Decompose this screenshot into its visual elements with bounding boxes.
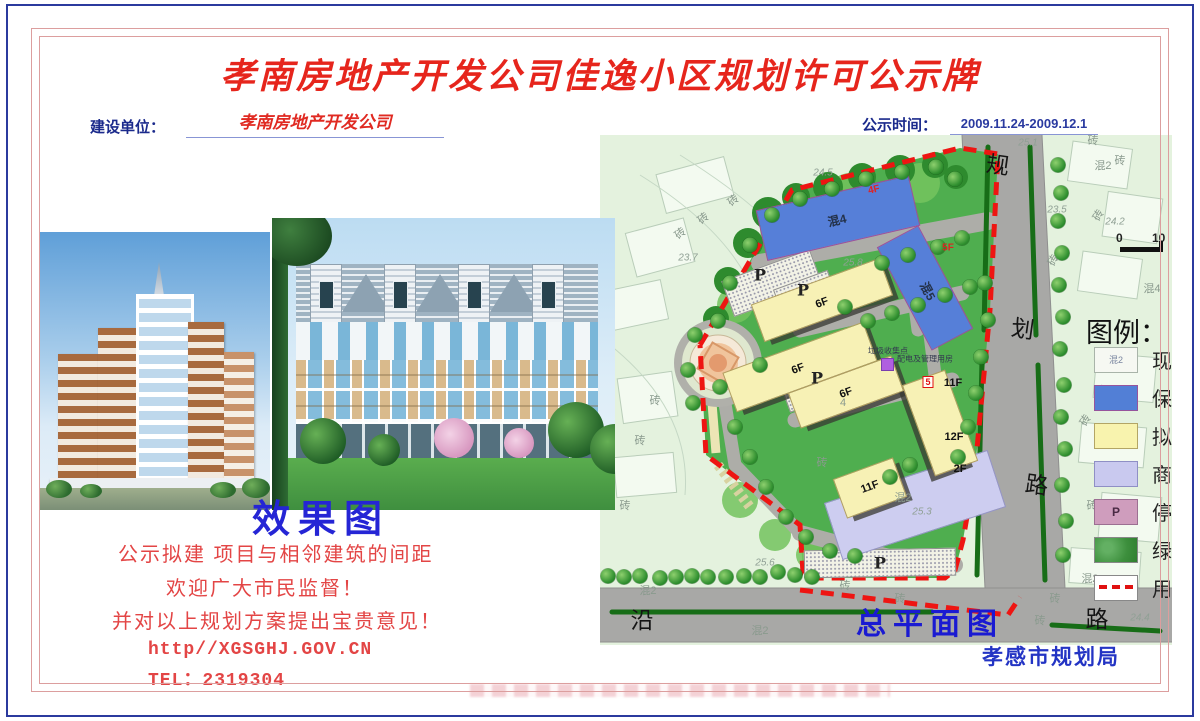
tree-icon xyxy=(713,380,728,395)
map-label: 砖 xyxy=(620,497,631,513)
tree-icon xyxy=(929,160,944,175)
tree-icon xyxy=(1054,410,1069,425)
tree-icon xyxy=(688,328,703,343)
map-label: 24.2 xyxy=(1105,217,1124,228)
tree-icon xyxy=(1053,342,1068,357)
map-label: P xyxy=(797,281,809,300)
tree-icon xyxy=(300,418,346,464)
tree-icon xyxy=(948,172,963,187)
tree-icon xyxy=(743,238,758,253)
legend-item: 混2现 xyxy=(1094,347,1172,372)
tree-icon xyxy=(711,314,726,329)
site-plan-layer: 规划路沿路混4混54F5F6F6F6F11F12F2F11F45PPPP垃圾收集… xyxy=(600,135,1172,645)
legend-label: 用 xyxy=(1152,573,1172,602)
tree-icon xyxy=(1057,378,1072,393)
tree-icon xyxy=(737,569,752,584)
tree-icon xyxy=(895,165,910,180)
map-label: 砖 xyxy=(635,432,646,448)
tree-icon xyxy=(601,569,616,584)
tower-spire xyxy=(154,262,164,296)
utility-building xyxy=(881,358,894,371)
map-label: 25.1 xyxy=(1018,138,1037,149)
tree-icon xyxy=(753,570,768,585)
notice-time-label: 公示时间： xyxy=(862,114,937,135)
tree-icon xyxy=(838,300,853,315)
tree-icon xyxy=(875,256,890,271)
legend-swatch-existing: 混2 xyxy=(1094,347,1138,373)
legend-swatch-blue xyxy=(1094,385,1138,411)
map-label: 砖 xyxy=(1088,135,1099,148)
tree-icon xyxy=(848,549,863,564)
dormer-window xyxy=(541,281,556,309)
tower-wing xyxy=(58,354,98,480)
tree-icon xyxy=(685,569,700,584)
map-label: 2F xyxy=(954,463,967,475)
tree-icon xyxy=(1058,442,1073,457)
tree-icon xyxy=(963,280,978,295)
dormer-window xyxy=(319,281,334,309)
tree-icon xyxy=(793,192,808,207)
tower-core xyxy=(136,294,194,480)
map-label: P xyxy=(874,554,886,573)
tree-icon xyxy=(799,530,814,545)
bush xyxy=(80,484,102,498)
tree-icon xyxy=(686,396,701,411)
foliage-blob xyxy=(272,218,332,266)
legend-items: 混2现保拟商P停绿用 xyxy=(1094,347,1172,613)
tree-icon xyxy=(1054,186,1069,201)
legend-item: 绿 xyxy=(1094,537,1172,562)
notice-board: 孝南房地产开发公司佳逸小区规划许可公示牌 建设单位： 孝南房地产开发公司 公示时… xyxy=(0,0,1200,721)
blossom-tree-icon xyxy=(434,418,474,458)
map-label: 砖 xyxy=(1035,612,1046,628)
map-label: 规 xyxy=(984,145,1012,182)
map-label: 4 xyxy=(840,397,846,409)
legend-item: 保 xyxy=(1094,385,1172,410)
tree-icon xyxy=(759,480,774,495)
rendering-photo-midrise xyxy=(272,218,615,510)
tree-icon xyxy=(805,570,820,585)
tree-icon xyxy=(669,570,684,585)
tree-icon xyxy=(743,450,758,465)
tree-icon xyxy=(719,570,734,585)
map-label: 24.4 xyxy=(1130,613,1149,624)
legend-swatch-lavender xyxy=(1094,461,1138,487)
scale-zero-label: 0 xyxy=(1116,231,1123,245)
site-plan: 规划路沿路混4混54F5F6F6F6F11F12F2F11F45PPPP垃圾收集… xyxy=(600,135,1172,645)
tower-wing xyxy=(188,322,224,480)
legend-swatch-green xyxy=(1094,537,1138,563)
tree-icon xyxy=(981,313,996,328)
builder-value: 孝南房地产开发公司 xyxy=(186,108,444,138)
upper-floors xyxy=(296,322,598,363)
notice-line: 公示拟建 项目与相邻建筑的间距 xyxy=(118,538,434,567)
tree-icon xyxy=(974,350,989,365)
tree-icon xyxy=(955,231,970,246)
map-label: 24.5 xyxy=(813,168,832,179)
legend-swatch-redline xyxy=(1094,575,1138,601)
watermark xyxy=(470,684,890,697)
page-title: 孝南房地产开发公司佳逸小区规划许可公示牌 xyxy=(0,48,1200,99)
tree-icon xyxy=(723,276,738,291)
map-label: 划 xyxy=(1009,309,1037,346)
legend-item: 商 xyxy=(1094,461,1172,486)
scale-bar-tick xyxy=(1159,241,1163,252)
tree-icon xyxy=(788,568,803,583)
scale-bar xyxy=(1120,247,1162,252)
tree-icon xyxy=(1052,278,1067,293)
legend-item: 拟 xyxy=(1094,423,1172,448)
map-label: 混2 xyxy=(894,489,911,505)
tree-icon xyxy=(901,248,916,263)
map-label: 混2 xyxy=(639,582,656,598)
tree-icon xyxy=(1056,548,1071,563)
map-label: P xyxy=(754,266,766,285)
map-label: 12F xyxy=(945,431,964,443)
tree-icon xyxy=(728,420,743,435)
legend-label: 商 xyxy=(1152,459,1172,488)
tree-icon xyxy=(368,434,400,466)
blossom-tree-icon xyxy=(504,428,534,458)
legend-item: P停 xyxy=(1094,499,1172,524)
map-label: 25.3 xyxy=(912,507,931,518)
tree-icon xyxy=(969,386,984,401)
legend-swatch-parking: P xyxy=(1094,499,1138,525)
tree-icon xyxy=(1059,514,1074,529)
legend-item: 用 xyxy=(1094,575,1172,600)
map-label: 砖 xyxy=(694,208,713,227)
map-label: 砖 xyxy=(671,223,690,242)
legend-label: 绿 xyxy=(1152,535,1172,564)
map-label: 23.5 xyxy=(1047,205,1066,216)
notice-line: 并对以上规划方案提出宝贵意见！ xyxy=(112,605,442,634)
builder-label: 建设单位： xyxy=(90,116,165,137)
map-label: 砖 xyxy=(1050,590,1061,606)
map-label: P xyxy=(811,369,823,388)
planning-bureau-signature: 孝感市规划局 xyxy=(982,641,1120,671)
map-label: 11F xyxy=(944,377,962,389)
legend-label: 停 xyxy=(1152,497,1172,526)
map-label: 混2 xyxy=(1094,157,1111,173)
map-label: 25.8 xyxy=(843,258,862,269)
tree-icon xyxy=(617,570,632,585)
tree-icon xyxy=(765,208,780,223)
tree-icon xyxy=(885,306,900,321)
master-plan-caption: 总平面图 xyxy=(856,599,1004,643)
tree-icon xyxy=(883,470,898,485)
map-label: 砖 xyxy=(724,190,743,209)
map-label: 25.6 xyxy=(755,558,774,569)
map-label: 配电及管理用房 xyxy=(897,354,953,365)
dormer xyxy=(384,264,416,324)
tree-icon xyxy=(681,363,696,378)
map-label: 沿 xyxy=(631,601,654,635)
map-label: 砖 xyxy=(1075,411,1094,429)
bush xyxy=(46,480,72,498)
dormer xyxy=(532,264,564,324)
tree-icon xyxy=(1056,310,1071,325)
notice-line: 欢迎广大市民监督！ xyxy=(166,572,364,601)
map-label: 砖 xyxy=(1115,152,1126,168)
dormer xyxy=(310,264,342,324)
tree-icon xyxy=(701,570,716,585)
tree-icon xyxy=(823,544,838,559)
tree-icon xyxy=(861,314,876,329)
rendering-photo-tower xyxy=(40,232,270,510)
tree-icon xyxy=(779,510,794,525)
tower-wing xyxy=(224,352,254,480)
notice-line: TEL：2319304 xyxy=(148,665,285,691)
legend-label: 保 xyxy=(1152,383,1172,412)
map-label: 砖 xyxy=(817,454,828,470)
map-label: 23.7 xyxy=(678,253,697,264)
notice-time-value: 2009.11.24-2009.12.1 xyxy=(950,116,1098,135)
map-label: 砖 xyxy=(840,577,851,593)
tower-wing xyxy=(98,328,136,480)
tree-icon xyxy=(1051,214,1066,229)
bush xyxy=(210,482,236,498)
tree-icon xyxy=(753,358,768,373)
map-label: 砖 xyxy=(650,392,661,408)
map-label: 5F xyxy=(942,243,954,254)
dormer-window xyxy=(467,281,482,309)
tree-icon xyxy=(1055,478,1070,493)
dormer xyxy=(458,264,490,324)
map-label: 路 xyxy=(1023,465,1051,502)
legend-swatch-yellow xyxy=(1094,423,1138,449)
dormer-window xyxy=(393,281,408,309)
legend-label: 现 xyxy=(1152,345,1172,374)
map-label: 混4 xyxy=(1143,280,1160,296)
tree-icon xyxy=(825,182,840,197)
map-label: 5 xyxy=(922,376,933,388)
tree-icon xyxy=(903,458,918,473)
notice-line: http//XGSGHJ.GOV.CN xyxy=(148,640,372,660)
tree-icon xyxy=(978,276,993,291)
legend-label: 拟 xyxy=(1152,421,1172,450)
effect-drawing-caption: 效果图 xyxy=(252,488,390,543)
tree-icon xyxy=(1051,158,1066,173)
map-label: 混2 xyxy=(751,622,768,638)
